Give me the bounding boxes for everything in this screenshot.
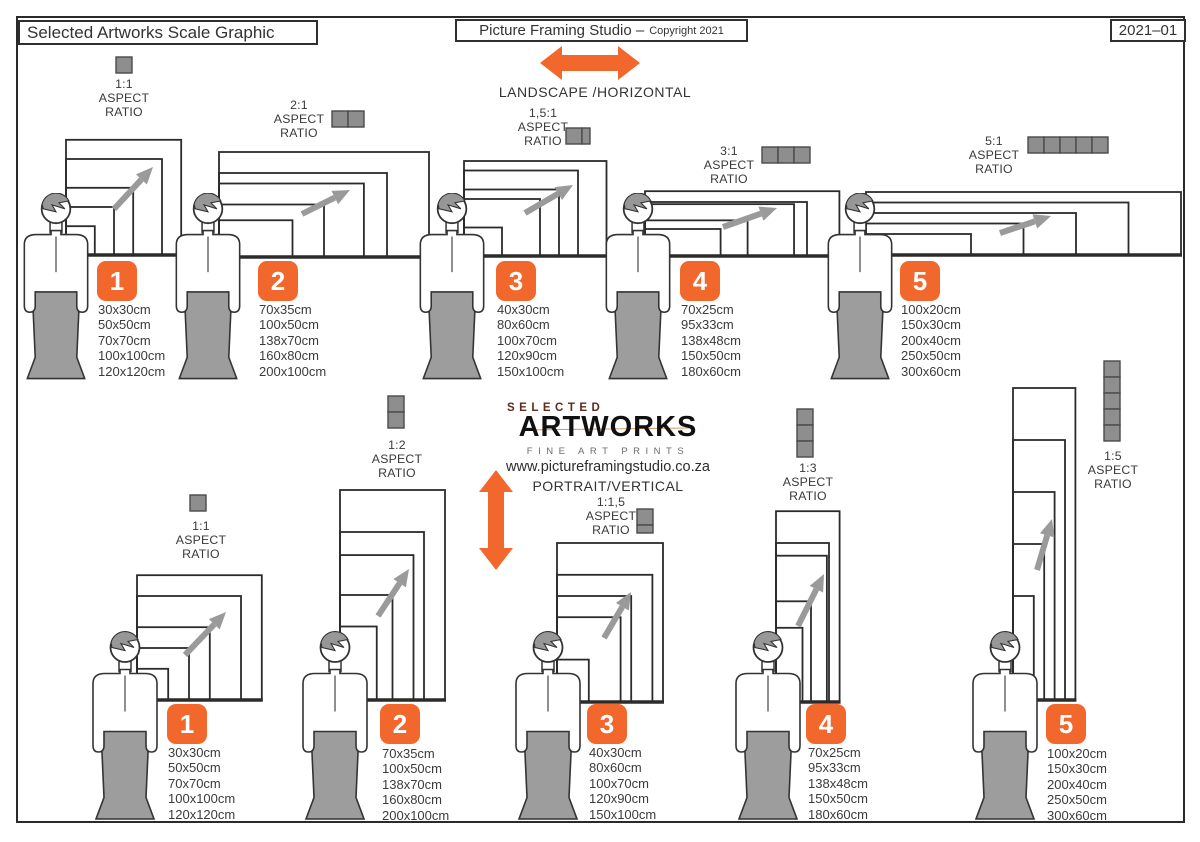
- size-item: 300x60cm: [1047, 808, 1107, 823]
- aspect-word: ASPECT: [556, 510, 666, 524]
- aspect-ratio-label: 1:2ASPECTRATIO: [342, 439, 452, 480]
- size-item: 150x100cm: [589, 807, 656, 822]
- aspect-ratio-label: 1:1ASPECTRATIO: [69, 78, 179, 119]
- ratio-value: 1:1,5: [556, 496, 666, 510]
- ratio-value: 5:1: [939, 135, 1049, 149]
- size-list: 30x30cm50x50cm70x70cm100x100cm120x120cm: [98, 302, 165, 379]
- size-item: 160x80cm: [259, 348, 326, 363]
- ratio-value: 1,5:1: [488, 107, 598, 121]
- aspect-word: ASPECT: [146, 534, 256, 548]
- poster-title: Selected Artworks Scale Graphic: [27, 23, 275, 43]
- size-item: 100x50cm: [382, 761, 449, 776]
- aspect-word: ASPECT: [939, 149, 1049, 163]
- group-number: 4: [819, 709, 833, 740]
- size-item: 200x40cm: [901, 333, 961, 348]
- aspect-ratio-label: 3:1ASPECTRATIO: [674, 145, 784, 186]
- aspect-ratio-label: 1:1ASPECTRATIO: [146, 520, 256, 561]
- size-item: 150x50cm: [808, 791, 868, 806]
- group-number: 4: [693, 266, 707, 297]
- size-item: 100x70cm: [497, 333, 564, 348]
- size-item: 138x48cm: [681, 333, 741, 348]
- ratio-value: 2:1: [244, 99, 354, 113]
- aspect-ratio-label: 5:1ASPECTRATIO: [939, 135, 1049, 176]
- aspect-ratio-label: 1:1,5ASPECTRATIO: [556, 496, 666, 537]
- size-item: 30x30cm: [168, 745, 235, 760]
- aspect-word: ASPECT: [244, 113, 354, 127]
- copyright-text: Copyright 2021: [649, 25, 724, 37]
- size-item: 120x90cm: [497, 348, 564, 363]
- size-list: 100x20cm150x30cm200x40cm250x50cm300x60cm: [901, 302, 961, 379]
- group-3-badge: 3: [496, 261, 536, 301]
- size-item: 100x20cm: [901, 302, 961, 317]
- size-item: 120x120cm: [168, 807, 235, 822]
- group-3-badge: 3: [587, 704, 627, 744]
- size-item: 150x30cm: [901, 317, 961, 332]
- size-item: 138x48cm: [808, 776, 868, 791]
- size-item: 100x20cm: [1047, 746, 1107, 761]
- group-5-badge: 5: [900, 261, 940, 301]
- size-list: 30x30cm50x50cm70x70cm100x100cm120x120cm: [168, 745, 235, 822]
- size-item: 70x25cm: [808, 745, 868, 760]
- aspect-word: ASPECT: [1058, 464, 1168, 478]
- website-url: www.pictureframingstudio.co.za: [488, 459, 728, 475]
- group-number: 3: [509, 266, 523, 297]
- ratio-word: RATIO: [342, 467, 452, 481]
- group-number: 3: [600, 709, 614, 740]
- group-1-badge: 1: [97, 261, 137, 301]
- aspect-ratio-label: 1,5:1ASPECTRATIO: [488, 107, 598, 148]
- logo-artworks-text: ARTWORKS: [518, 411, 698, 444]
- size-item: 80x60cm: [589, 760, 656, 775]
- size-item: 100x50cm: [259, 317, 326, 332]
- size-item: 200x100cm: [382, 808, 449, 823]
- aspect-word: ASPECT: [674, 159, 784, 173]
- size-item: 50x50cm: [168, 760, 235, 775]
- size-item: 70x25cm: [681, 302, 741, 317]
- ratio-word: RATIO: [1058, 478, 1168, 492]
- ratio-value: 1:1: [146, 520, 256, 534]
- size-item: 180x60cm: [681, 364, 741, 379]
- size-list: 70x25cm95x33cm138x48cm150x50cm180x60cm: [808, 745, 868, 822]
- size-item: 150x30cm: [1047, 761, 1107, 776]
- size-item: 70x35cm: [382, 746, 449, 761]
- size-list: 100x20cm150x30cm200x40cm250x50cm300x60cm: [1047, 746, 1107, 823]
- group-2-badge: 2: [380, 704, 420, 744]
- edition-code-box: 2021–01: [1110, 19, 1186, 42]
- size-list: 70x35cm100x50cm138x70cm160x80cm200x100cm: [259, 302, 326, 379]
- studio-name: Picture Framing Studio –: [479, 22, 644, 39]
- aspect-ratio-label: 1:5ASPECTRATIO: [1058, 450, 1168, 491]
- studio-header-box: Picture Framing Studio – Copyright 2021: [455, 19, 748, 42]
- size-item: 150x100cm: [497, 364, 564, 379]
- aspect-ratio-label: 2:1ASPECTRATIO: [244, 99, 354, 140]
- aspect-word: ASPECT: [69, 92, 179, 106]
- ratio-word: RATIO: [674, 173, 784, 187]
- aspect-word: ASPECT: [342, 453, 452, 467]
- scale-graphic-poster: Selected Artworks Scale Graphic Picture …: [0, 0, 1200, 842]
- size-item: 100x100cm: [168, 791, 235, 806]
- size-item: 200x100cm: [259, 364, 326, 379]
- ratio-value: 1:1: [69, 78, 179, 92]
- group-number: 1: [180, 709, 194, 740]
- ratio-value: 1:3: [753, 462, 863, 476]
- group-number: 2: [271, 266, 285, 297]
- group-number: 5: [913, 266, 927, 297]
- group-4-badge: 4: [806, 704, 846, 744]
- size-item: 200x40cm: [1047, 777, 1107, 792]
- size-item: 180x60cm: [808, 807, 868, 822]
- ratio-value: 1:5: [1058, 450, 1168, 464]
- size-item: 40x30cm: [589, 745, 656, 760]
- ratio-word: RATIO: [146, 548, 256, 562]
- size-item: 250x50cm: [901, 348, 961, 363]
- size-item: 30x30cm: [98, 302, 165, 317]
- size-item: 250x50cm: [1047, 792, 1107, 807]
- aspect-word: ASPECT: [753, 476, 863, 490]
- size-item: 95x33cm: [681, 317, 741, 332]
- size-item: 95x33cm: [808, 760, 868, 775]
- group-number: 5: [1059, 709, 1073, 740]
- aspect-word: ASPECT: [488, 121, 598, 135]
- size-item: 100x70cm: [589, 776, 656, 791]
- group-1-badge: 1: [167, 704, 207, 744]
- size-item: 100x100cm: [98, 348, 165, 363]
- size-list: 70x25cm95x33cm138x48cm150x50cm180x60cm: [681, 302, 741, 379]
- size-item: 70x70cm: [98, 333, 165, 348]
- size-item: 50x50cm: [98, 317, 165, 332]
- ratio-value: 3:1: [674, 145, 784, 159]
- size-item: 70x70cm: [168, 776, 235, 791]
- size-item: 80x60cm: [497, 317, 564, 332]
- ratio-word: RATIO: [488, 135, 598, 149]
- ratio-word: RATIO: [69, 106, 179, 120]
- size-item: 160x80cm: [382, 792, 449, 807]
- ratio-word: RATIO: [244, 127, 354, 141]
- size-list: 40x30cm80x60cm100x70cm120x90cm150x100cm: [497, 302, 564, 379]
- ratio-value: 1:2: [342, 439, 452, 453]
- size-item: 120x120cm: [98, 364, 165, 379]
- landscape-section-label: LANDSCAPE /HORIZONTAL: [495, 84, 695, 100]
- group-number: 2: [393, 709, 407, 740]
- ratio-word: RATIO: [753, 490, 863, 504]
- size-list: 40x30cm80x60cm100x70cm120x90cm150x100cm: [589, 745, 656, 822]
- size-item: 138x70cm: [382, 777, 449, 792]
- size-item: 40x30cm: [497, 302, 564, 317]
- size-list: 70x35cm100x50cm138x70cm160x80cm200x100cm: [382, 746, 449, 823]
- aspect-ratio-label: 1:3ASPECTRATIO: [753, 462, 863, 503]
- size-item: 138x70cm: [259, 333, 326, 348]
- group-5-badge: 5: [1046, 704, 1086, 744]
- size-item: 300x60cm: [901, 364, 961, 379]
- ratio-word: RATIO: [939, 163, 1049, 177]
- size-item: 70x35cm: [259, 302, 326, 317]
- group-number: 1: [110, 266, 124, 297]
- logo-fine-art-prints-text: FINE ART PRINTS: [518, 446, 698, 457]
- portrait-section-label: PORTRAIT/VERTICAL: [508, 478, 708, 494]
- size-item: 120x90cm: [589, 791, 656, 806]
- edition-code: 2021–01: [1119, 22, 1177, 39]
- poster-title-box: Selected Artworks Scale Graphic: [18, 20, 318, 45]
- group-4-badge: 4: [680, 261, 720, 301]
- ratio-word: RATIO: [556, 524, 666, 538]
- size-item: 150x50cm: [681, 348, 741, 363]
- group-2-badge: 2: [258, 261, 298, 301]
